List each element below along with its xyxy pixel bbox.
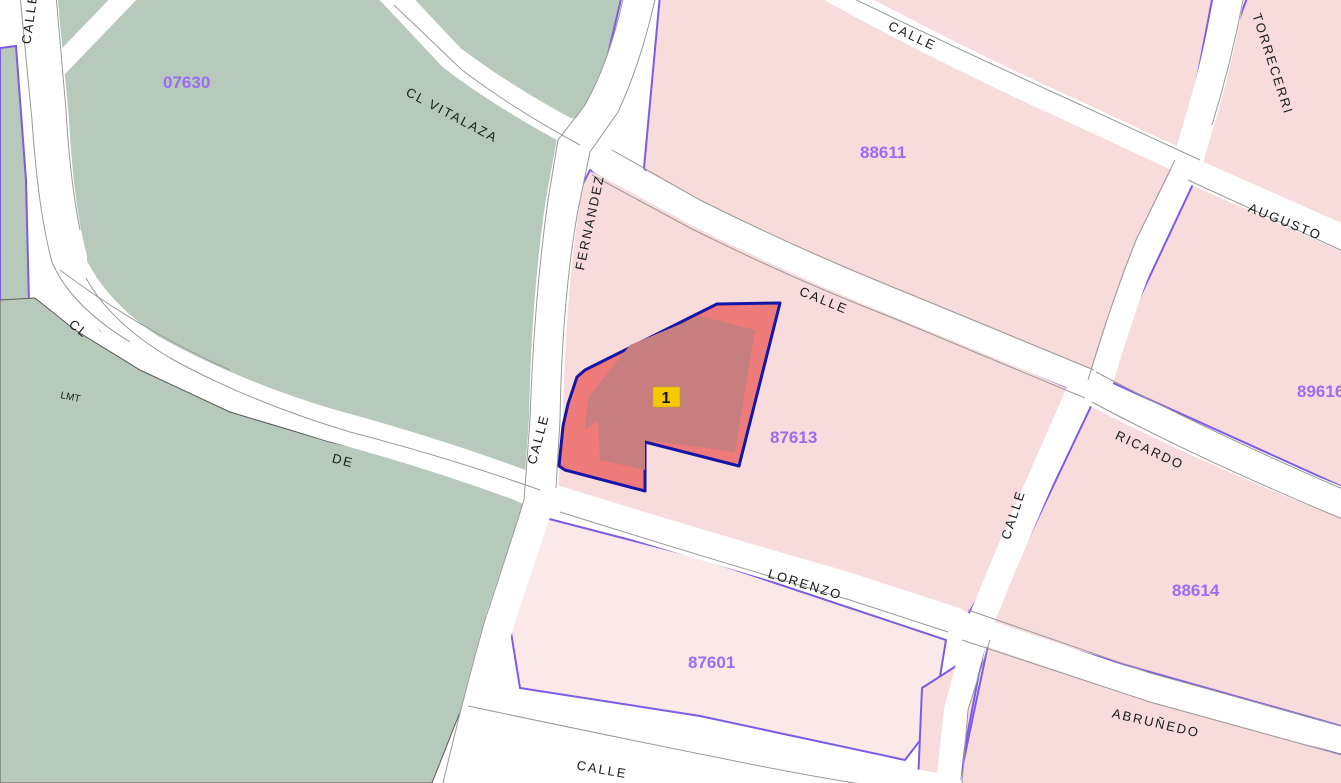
svg-text:1: 1: [662, 390, 671, 407]
svg-text:07630: 07630: [163, 73, 210, 92]
svg-text:87613: 87613: [770, 428, 817, 447]
svg-text:88611: 88611: [860, 143, 906, 162]
svg-text:89616: 89616: [1297, 382, 1341, 401]
svg-text:88614: 88614: [1172, 581, 1220, 600]
svg-text:87601: 87601: [688, 653, 735, 672]
